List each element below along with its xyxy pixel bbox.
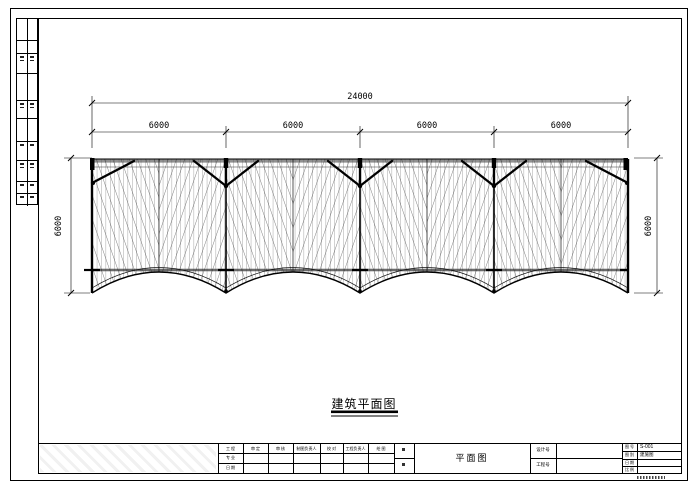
tb-col-proofread: 校 对	[320, 444, 343, 453]
tb-design-no-label: 设计号	[530, 444, 556, 457]
tb-sheet-no-label: 图 号	[622, 444, 637, 452]
dim-height-left-label: 6000	[54, 216, 64, 236]
tb-sheet-no-value: S-001	[638, 444, 683, 452]
tb-scale-label: 比 例	[622, 467, 637, 474]
tb-scale-value	[638, 467, 683, 474]
tb-col-checked: 审 核	[268, 444, 293, 453]
tb-date-label: 日 期	[622, 459, 637, 466]
titleblock-watermark-cell	[40, 445, 216, 472]
tb-col-draft-lead: 制图负责人	[293, 444, 320, 453]
dim-bay4-label: 6000	[551, 121, 571, 131]
tb-col-project-lead: 工程负责人	[343, 444, 368, 453]
tb-row-discipline: 专 业	[218, 454, 243, 463]
tb-stamp-mark	[402, 448, 405, 451]
drawing-title: 建筑平面图	[331, 396, 396, 411]
tb-col-project: 工 程	[218, 444, 243, 453]
dim-height-right-label: 6000	[644, 216, 654, 236]
dim-overall-label: 24000	[347, 92, 373, 102]
design-firm-text	[637, 476, 665, 479]
dim-bay2-label: 6000	[283, 121, 303, 131]
plan-drawing: 24000 6000 6000 6000 6000 6000 6000 建筑平面…	[0, 0, 700, 494]
sheet-name: 平面图	[414, 443, 530, 474]
tb-project-no-label: 工程号	[530, 459, 556, 472]
tb-col-drawn: 绘 图	[368, 444, 394, 453]
roof-mesh	[84, 158, 629, 299]
tb-date-value	[638, 459, 683, 466]
tb-sheet-type-value: 建施图	[638, 452, 683, 459]
dim-bay1-label: 6000	[149, 121, 169, 131]
tb-col-approved: 审 定	[243, 444, 268, 453]
tb-row-date: 日 期	[218, 464, 243, 473]
drawing-sheet: 24000 6000 6000 6000 6000 6000 6000 建筑平面…	[0, 0, 700, 494]
dim-bay3-label: 6000	[417, 121, 437, 131]
tb-stamp-mark	[402, 463, 405, 466]
tb-sheet-type-label: 图 别	[622, 452, 637, 459]
drawing-caption: 建筑平面图	[331, 396, 398, 416]
